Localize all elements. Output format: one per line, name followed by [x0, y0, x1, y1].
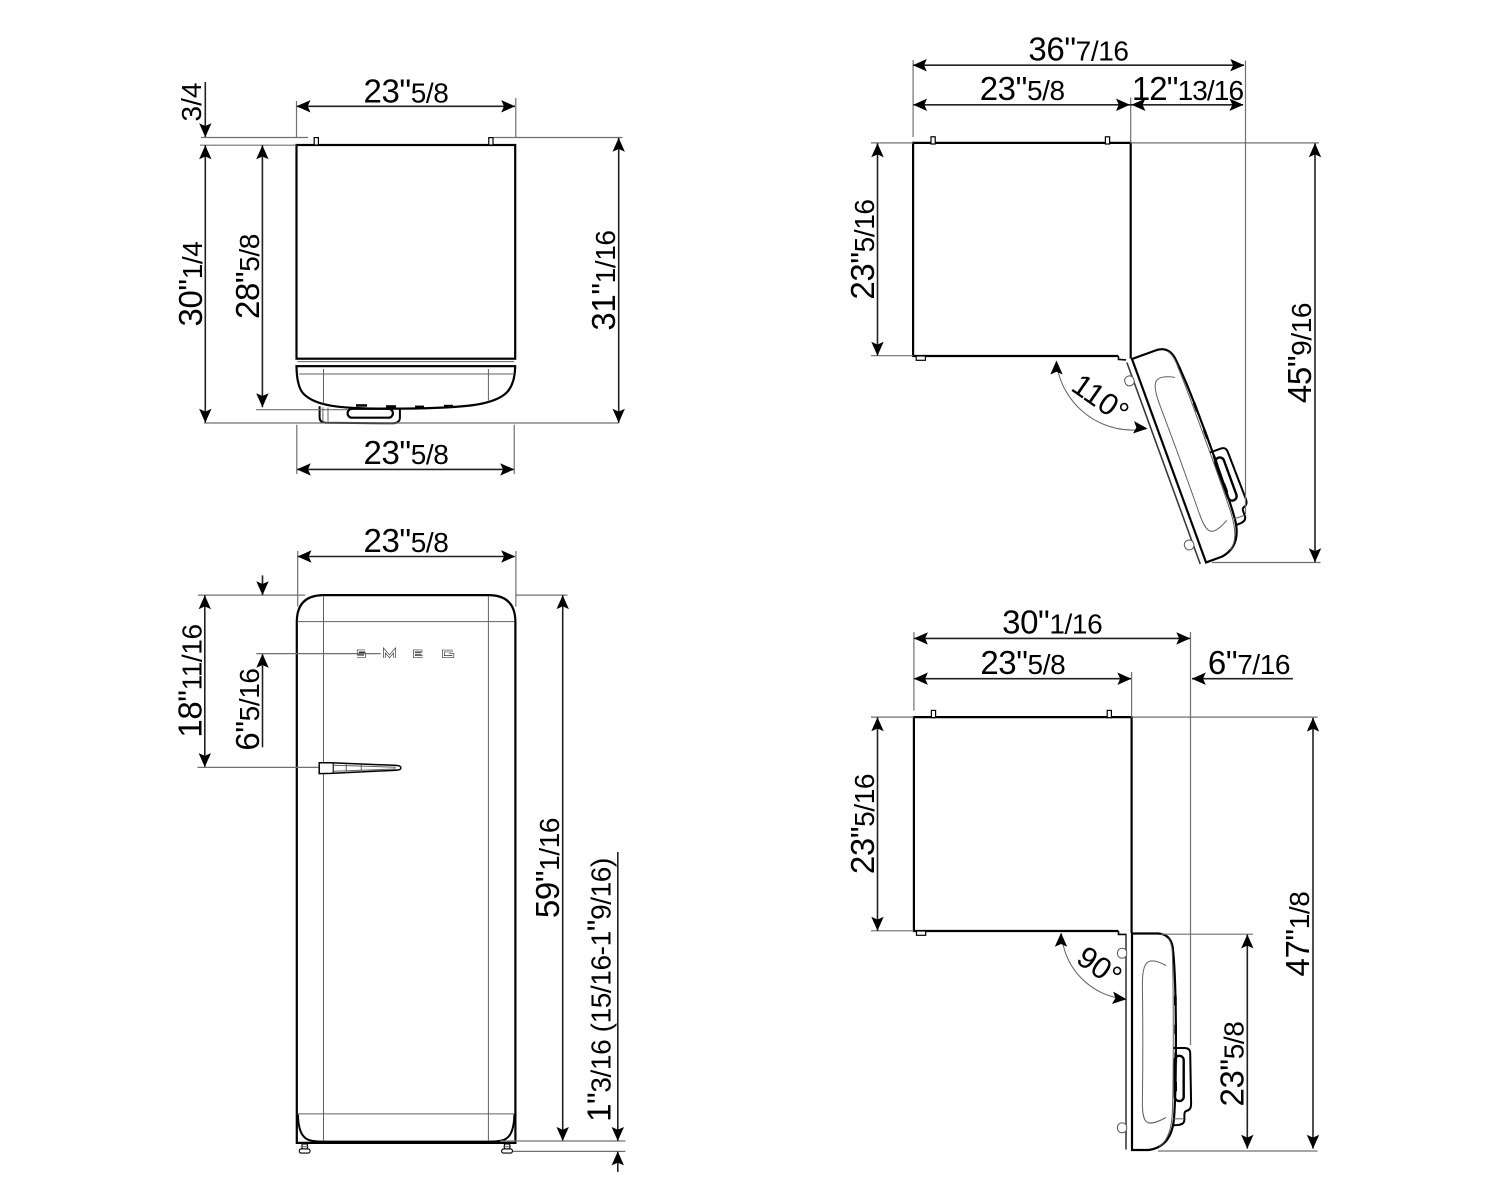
svg-text:23"5/8: 23"5/8 [1214, 1022, 1251, 1107]
svg-text:23"5/8: 23"5/8 [364, 73, 449, 110]
svg-text:3/4: 3/4 [176, 83, 207, 122]
svg-text:45"9/16: 45"9/16 [1281, 303, 1318, 403]
svg-text:23"5/16: 23"5/16 [844, 199, 881, 299]
svg-text:36"7/16: 36"7/16 [1028, 31, 1128, 68]
svg-text:6"7/16: 6"7/16 [1208, 644, 1290, 681]
svg-text:31"1/16: 31"1/16 [585, 230, 622, 330]
svg-text:28"5/8: 28"5/8 [229, 234, 266, 319]
svg-text:23"5/16: 23"5/16 [844, 774, 881, 874]
svg-text:30"1/4: 30"1/4 [172, 242, 209, 327]
svg-text:12"13/16: 12"13/16 [1132, 70, 1244, 107]
svg-text:23"5/8: 23"5/8 [364, 522, 449, 559]
svg-text:23"5/8: 23"5/8 [364, 434, 449, 471]
svg-text:47"1/8: 47"1/8 [1279, 892, 1316, 977]
svg-text:23"5/8: 23"5/8 [980, 70, 1065, 107]
svg-text:59"1/16: 59"1/16 [529, 818, 566, 918]
svg-text:18"11/16: 18"11/16 [172, 624, 209, 737]
svg-text:30"1/16: 30"1/16 [1002, 604, 1102, 641]
svg-text:1"3/16 (15/16-1"9/16): 1"3/16 (15/16-1"9/16) [581, 858, 618, 1122]
svg-text:23"5/8: 23"5/8 [980, 644, 1065, 681]
svg-text:6"5/16: 6"5/16 [229, 668, 266, 750]
